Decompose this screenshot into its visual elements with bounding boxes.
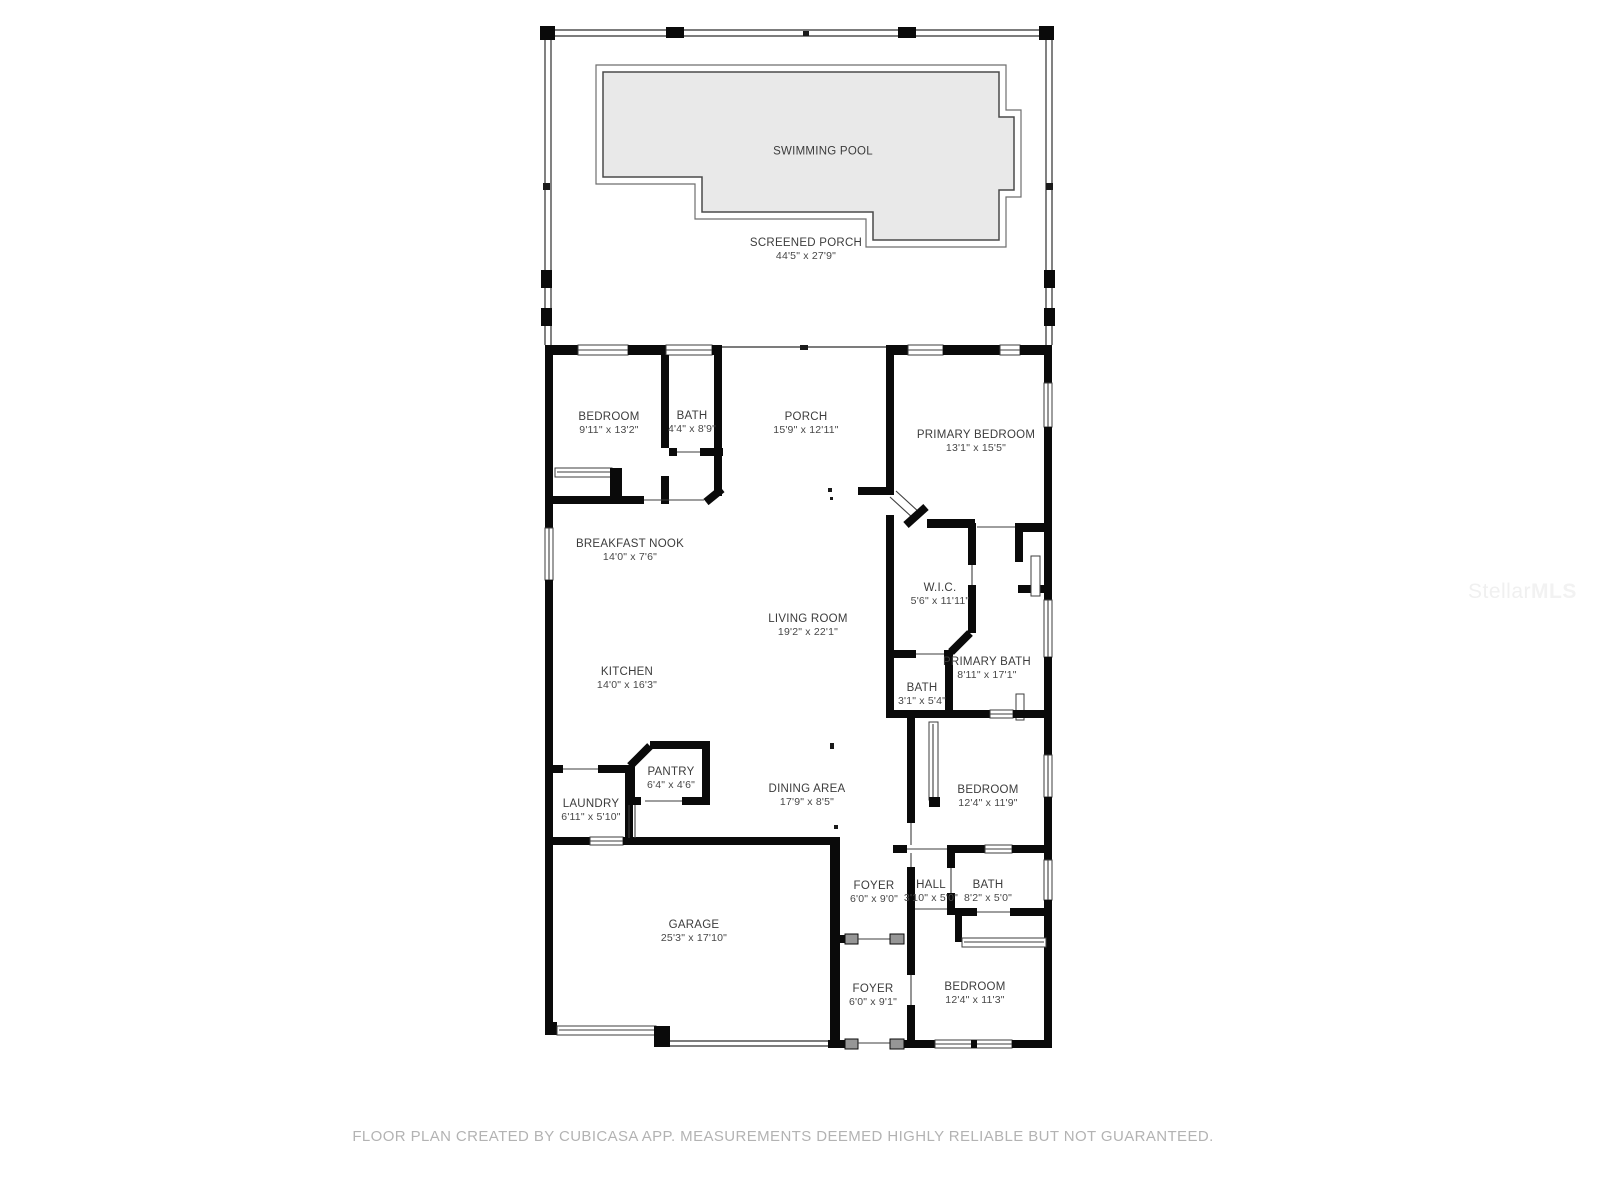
floor-plan-drawing — [0, 0, 1600, 1200]
room-label-screened-porch: SCREENED PORCH 44'5" x 27'9" — [750, 237, 862, 263]
room-label-bath-1: BATH 4'4" x 8'9" — [668, 410, 716, 436]
room-label-pantry: PANTRY 6'4" x 4'6" — [647, 766, 695, 792]
room-label-kitchen: KITCHEN 14'0" x 16'3" — [597, 666, 657, 692]
room-label-living-room: LIVING ROOM 19'2" x 22'1" — [768, 613, 847, 639]
room-label-bath-3: BATH 8'2" x 5'0" — [964, 879, 1012, 905]
room-label-bath-2: BATH 3'1" x 5'4" — [898, 682, 946, 708]
room-label-garage: GARAGE 25'3" x 17'10" — [661, 919, 727, 945]
room-label-foyer-1: FOYER 6'0" x 9'0" — [850, 880, 898, 906]
stellar-mls-watermark: StellarMLS — [1468, 580, 1577, 604]
room-label-primary-bedroom: PRIMARY BEDROOM 13'1" x 15'5" — [917, 429, 1035, 455]
room-label-laundry: LAUNDRY 6'11" x 5'10" — [561, 798, 620, 824]
floor-plan-page: SWIMMING POOL SCREENED PORCH 44'5" x 27'… — [0, 0, 1600, 1200]
room-label-bedroom-1: BEDROOM 9'11" x 13'2" — [578, 411, 639, 437]
room-label-hall: HALL 3'10" x 5'0" — [904, 879, 958, 905]
room-label-breakfast-nook: BREAKFAST NOOK 14'0" x 7'6" — [576, 538, 684, 564]
footer-disclaimer: FLOOR PLAN CREATED BY CUBICASA APP. MEAS… — [0, 1128, 1566, 1145]
room-label-dining-area: DINING AREA 17'9" x 8'5" — [769, 783, 846, 809]
room-label-primary-bath: PRIMARY BATH 8'11" x 17'1" — [943, 656, 1031, 682]
interior-walls — [545, 355, 1052, 1048]
room-label-swimming-pool: SWIMMING POOL — [773, 146, 873, 159]
room-label-porch: PORCH 15'9" x 12'11" — [773, 411, 838, 437]
room-label-bedroom-3: BEDROOM 12'4" x 11'3" — [944, 981, 1005, 1007]
room-label-bedroom-2: BEDROOM 12'4" x 11'9" — [957, 784, 1018, 810]
room-label-foyer-2: FOYER 6'0" x 9'1" — [849, 983, 897, 1009]
room-label-wic: W.I.C. 5'6" x 11'11" — [911, 582, 970, 608]
